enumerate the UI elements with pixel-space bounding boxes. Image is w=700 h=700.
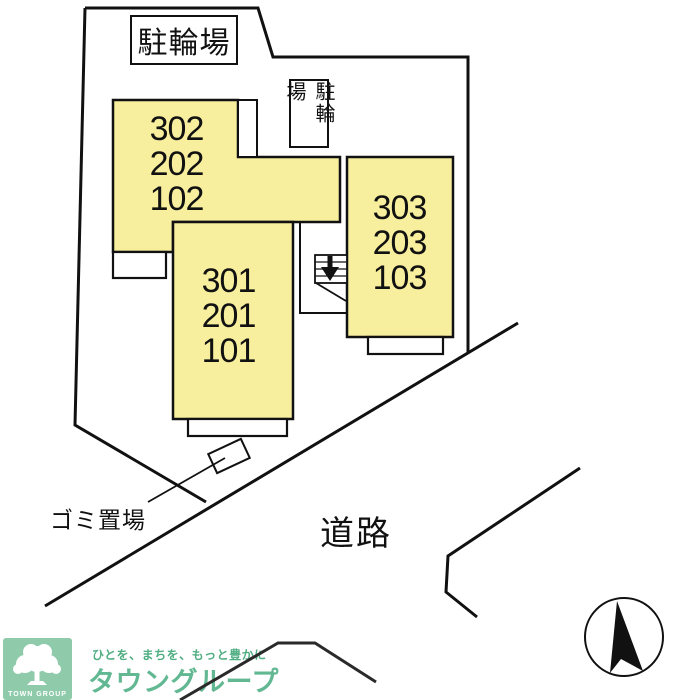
- label-layer: 駐輪場 駐輪場 302 202 102 301 201 101 303 203 …: [0, 0, 700, 700]
- town-group-logo: TOWN GROUP ひとを、まちを、もっと豊かに タウングループ: [3, 638, 293, 700]
- unit-number: 301: [181, 264, 276, 299]
- logo-green-square: TOWN GROUP: [3, 638, 72, 700]
- logo-group-name-en: TOWN GROUP: [3, 691, 72, 698]
- road-label: 道路: [320, 506, 392, 555]
- garbage-area-label: ゴミ置場: [50, 501, 146, 535]
- unit-number: 203: [352, 226, 447, 261]
- bicycle-parking-label-side: 駐輪場: [289, 79, 329, 148]
- building-east-units: 303 203 103: [352, 191, 447, 296]
- bicycle-parking-label-top: 駐輪場: [130, 15, 238, 65]
- unit-number: 102: [129, 182, 224, 217]
- building-south-units: 301 201 101: [181, 264, 276, 369]
- unit-number: 302: [129, 112, 224, 147]
- unit-number: 303: [352, 191, 447, 226]
- site-plan-page: 駐輪場 駐輪場 302 202 102 301 201 101 303 203 …: [0, 0, 700, 700]
- unit-number: 101: [181, 334, 276, 369]
- unit-number: 201: [181, 299, 276, 334]
- unit-number: 103: [352, 261, 447, 296]
- logo-brand-name: タウングループ: [88, 660, 279, 699]
- unit-number: 202: [129, 147, 224, 182]
- building-west-units: 302 202 102: [129, 112, 224, 217]
